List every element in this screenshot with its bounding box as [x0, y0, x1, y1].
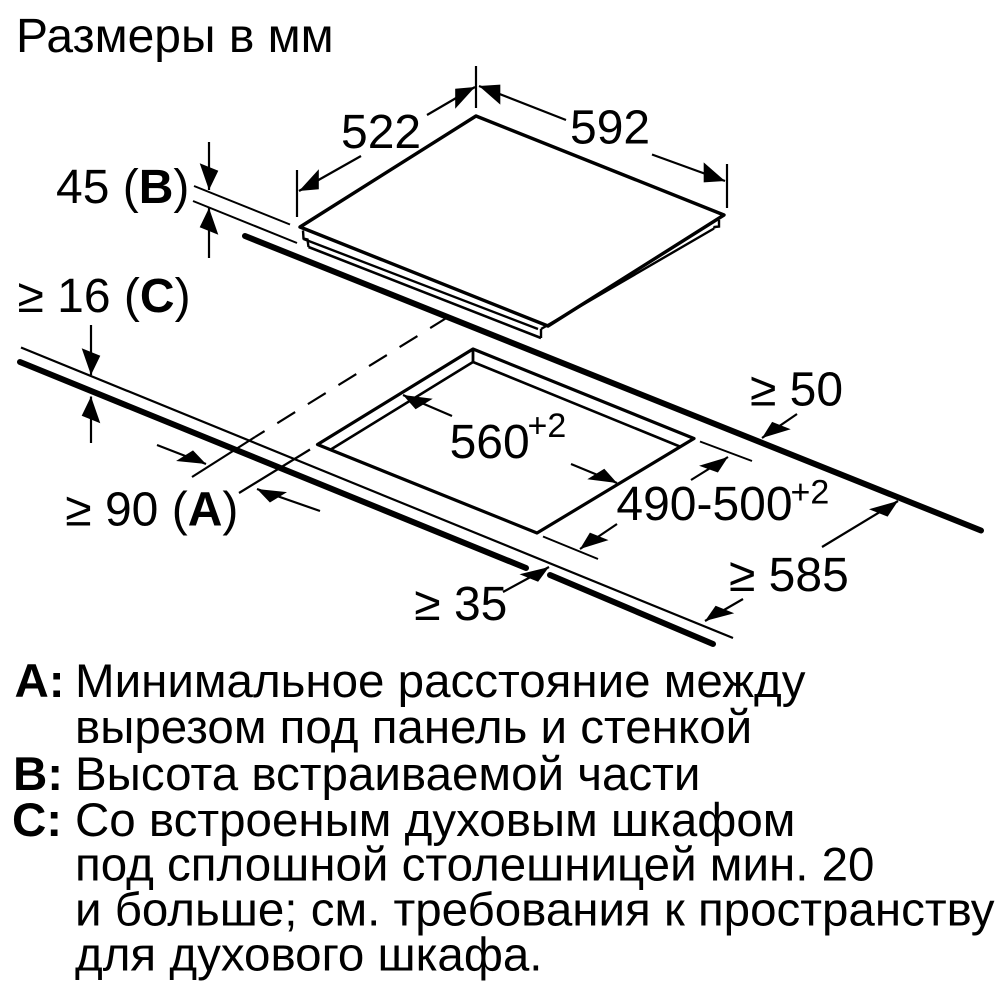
svg-text:45 (B): 45 (B) [56, 161, 189, 214]
svg-text:+2: +2 [528, 407, 567, 445]
svg-text:522: 522 [341, 106, 421, 159]
svg-text:вырезом под панель и стенкой: вырезом под панель и стенкой [75, 701, 752, 754]
svg-text:560: 560 [450, 416, 530, 469]
svg-text:≥ 50: ≥ 50 [750, 364, 843, 417]
svg-text:Размеры в мм: Размеры в мм [16, 10, 334, 63]
svg-text:А:: А: [15, 655, 65, 708]
svg-text:≥ 16 (C): ≥ 16 (C) [18, 270, 191, 323]
svg-text:С:: С: [12, 794, 62, 847]
svg-text:для духового шкафа.: для духового шкафа. [75, 929, 543, 982]
svg-text:+2: +2 [791, 474, 830, 512]
svg-text:≥ 585: ≥ 585 [729, 549, 849, 602]
svg-text:592: 592 [570, 102, 650, 155]
svg-text:490-500: 490-500 [616, 478, 792, 531]
svg-text:≥ 35: ≥ 35 [414, 578, 507, 631]
svg-text:≥ 90 (A): ≥ 90 (A) [65, 484, 238, 537]
